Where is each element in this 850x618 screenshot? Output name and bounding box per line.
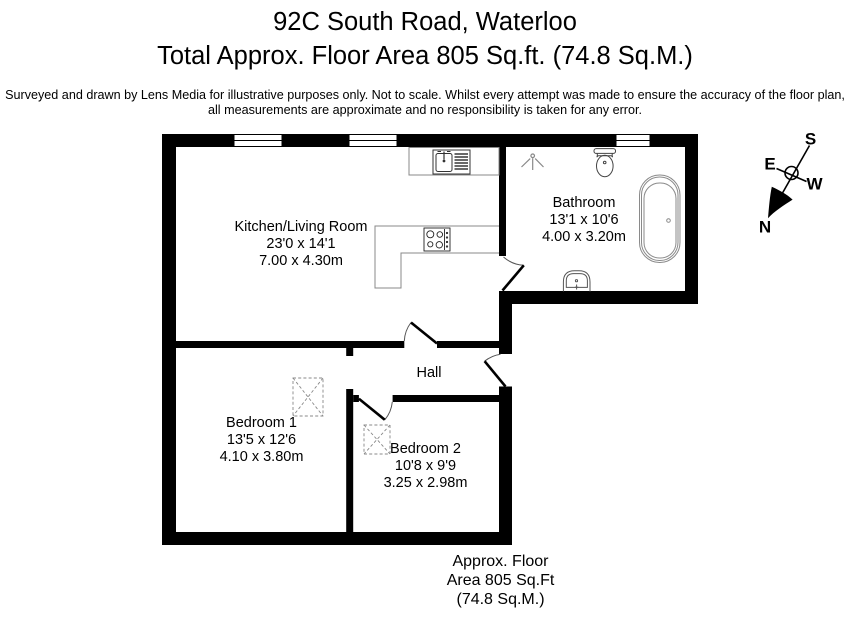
svg-text:S: S: [805, 130, 816, 149]
svg-text:W: W: [806, 175, 823, 194]
svg-text:E: E: [764, 155, 775, 174]
svg-text:N: N: [759, 218, 771, 237]
